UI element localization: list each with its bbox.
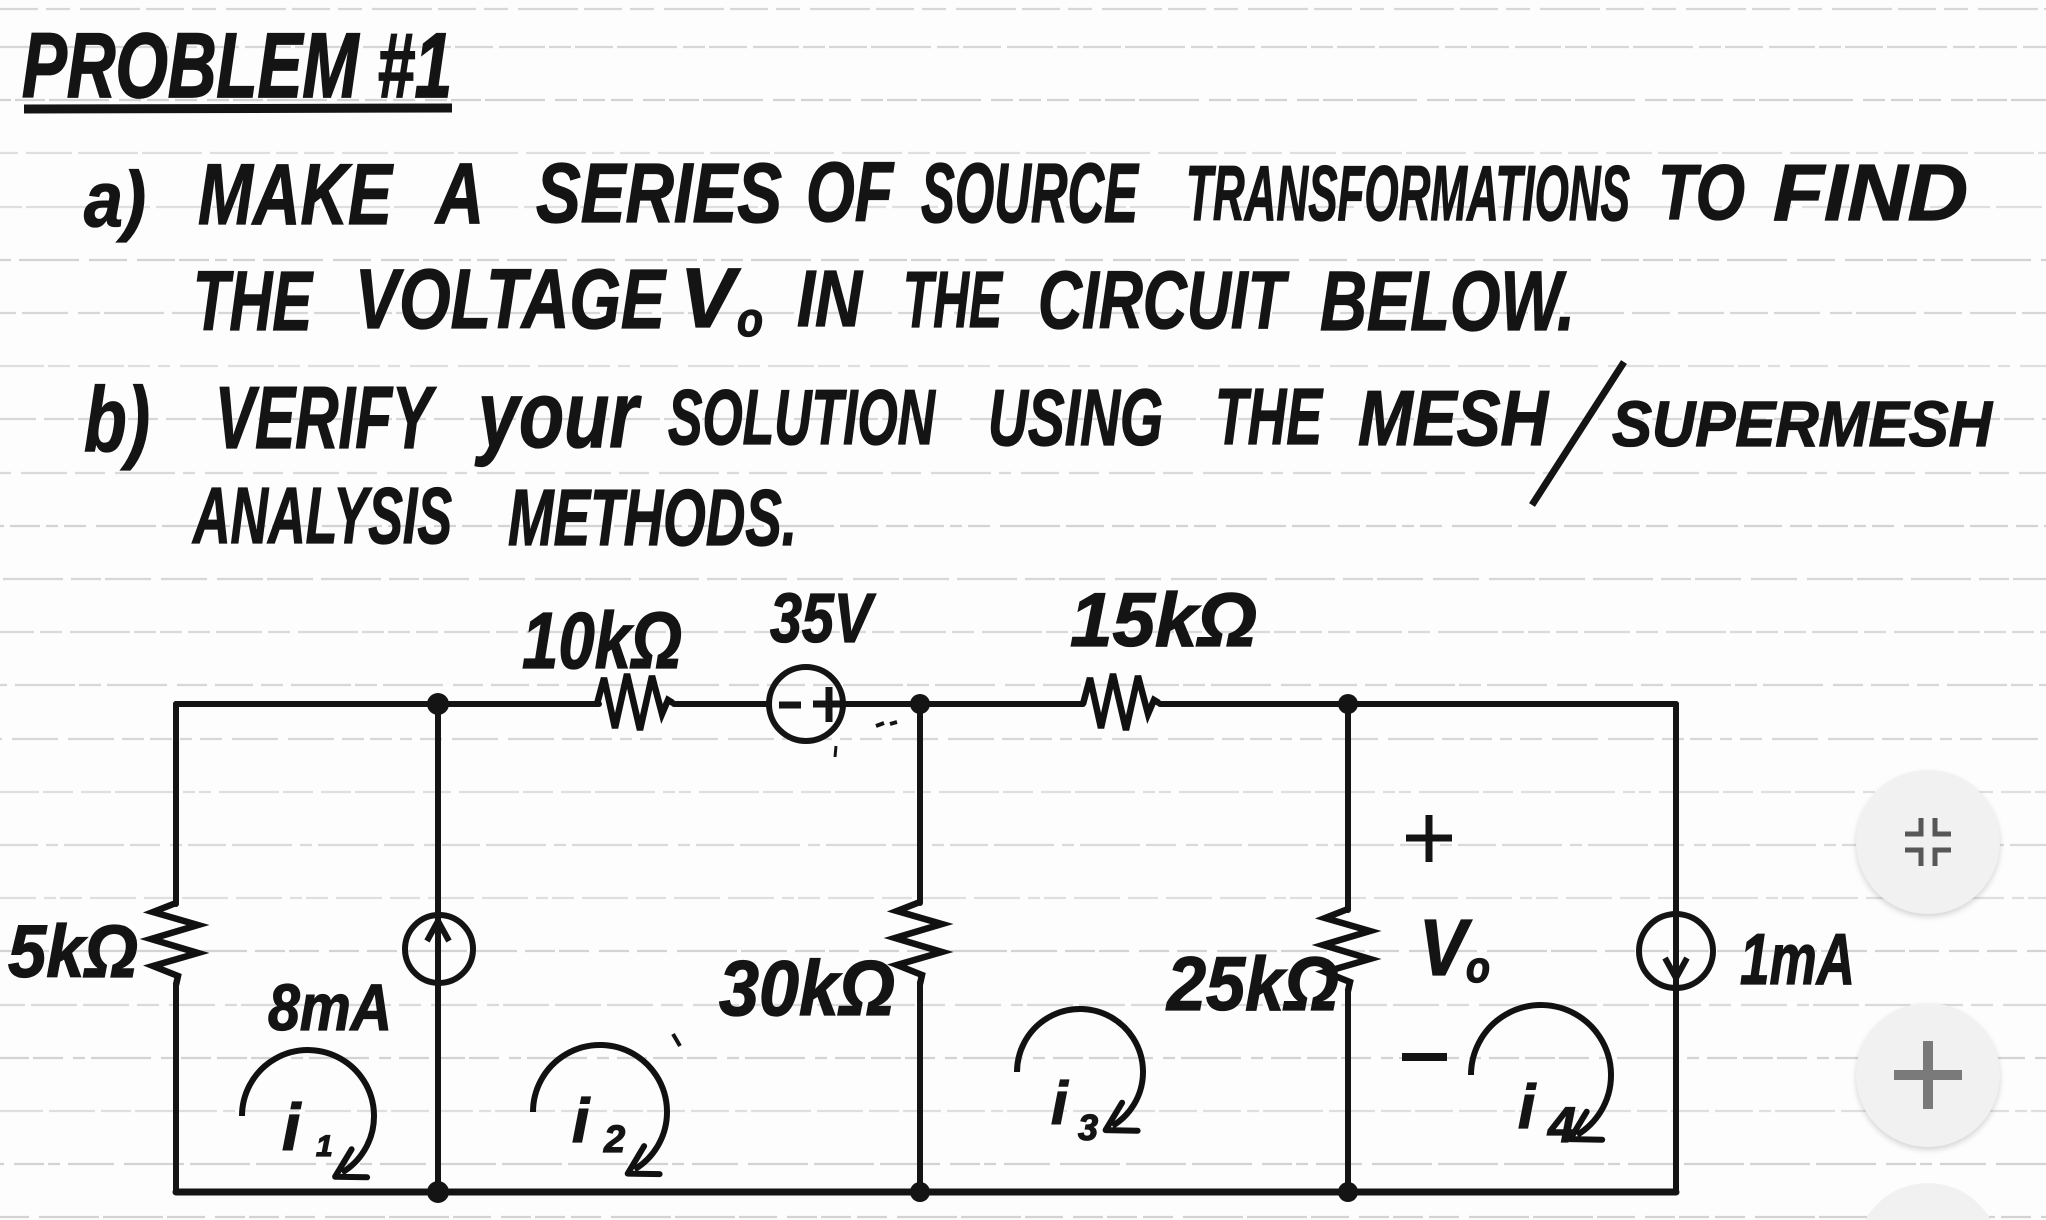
svg-text:VOLTAGE: VOLTAGE [355,252,667,346]
svg-text:8mA: 8mA [268,970,392,1044]
svg-text:i: i [1051,1070,1069,1137]
svg-text:15kΩ: 15kΩ [1070,578,1257,663]
svg-text:SOLUTION: SOLUTION [668,373,936,461]
svg-text:MAKE: MAKE [198,147,394,243]
svg-text:ANALYSIS: ANALYSIS [192,471,452,560]
svg-text:VERIFY: VERIFY [215,368,437,467]
svg-text:V: V [680,251,741,345]
svg-text:i: i [572,1087,591,1156]
svg-text:USING: USING [988,373,1163,462]
svg-text:1mA: 1mA [1740,920,1855,1000]
svg-text:THE: THE [903,255,1004,344]
svg-text:METHODS.: METHODS. [508,473,797,562]
svg-text:TRANSFORMATIONS: TRANSFORMATIONS [1186,149,1630,237]
svg-text:MESH: MESH [1358,374,1549,462]
svg-text:IN: IN [797,254,864,343]
svg-text:3: 3 [1078,1107,1098,1148]
svg-text:5kΩ: 5kΩ [8,910,138,993]
svg-text:SUPERMESH: SUPERMESH [1612,388,1994,460]
svg-text:1: 1 [316,1130,333,1163]
svg-text:10kΩ: 10kΩ [522,596,682,685]
svg-text:a): a) [84,155,146,243]
svg-text:o: o [737,294,763,347]
svg-text:o: o [1466,943,1490,992]
svg-text:SERIES: SERIES [536,146,782,240]
svg-text:SOURCE: SOURCE [921,146,1140,240]
svg-text:i: i [1518,1073,1537,1142]
svg-text:BELOW.: BELOW. [1320,254,1575,348]
svg-text:TO: TO [1658,148,1745,236]
svg-text:your: your [475,362,642,468]
svg-text:A: A [434,146,484,242]
svg-text:25kΩ: 25kΩ [1165,942,1339,1027]
svg-text:FIND: FIND [1773,148,1968,237]
svg-text:THE: THE [193,254,314,348]
svg-text:V: V [1419,903,1472,992]
svg-text:OF: OF [806,145,895,239]
svg-text:b): b) [84,369,150,471]
svg-text:i: i [282,1090,302,1164]
svg-text:CIRCUIT: CIRCUIT [1038,255,1289,346]
svg-text:35V: 35V [770,579,876,657]
svg-text:PROBLEM #1: PROBLEM #1 [22,15,452,117]
svg-text:2: 2 [603,1119,625,1161]
svg-text:30kΩ: 30kΩ [719,944,895,1032]
svg-text:4: 4 [1547,1097,1576,1153]
svg-text:THE: THE [1215,372,1324,461]
